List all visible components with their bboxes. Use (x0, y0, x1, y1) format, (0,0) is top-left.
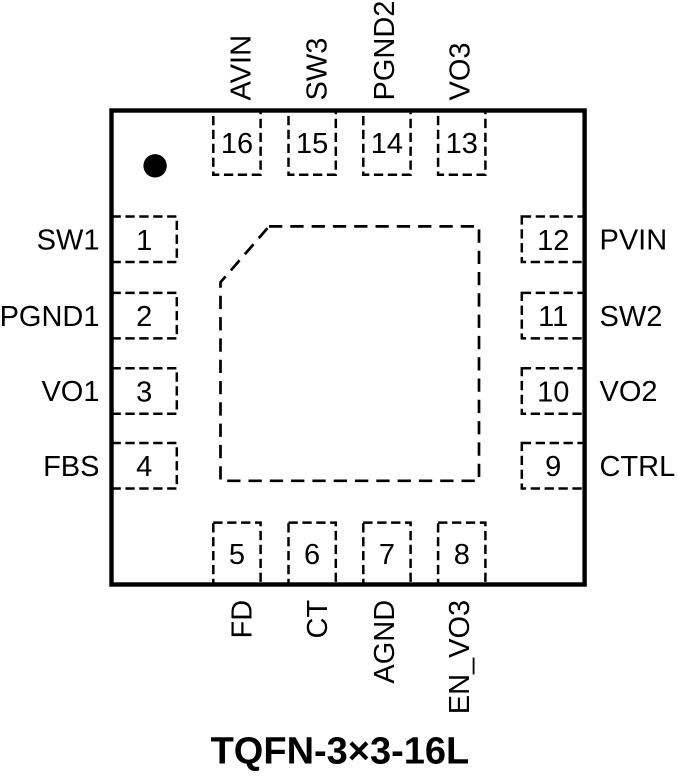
svg-text:VO3: VO3 (445, 42, 477, 100)
svg-text:14: 14 (371, 128, 403, 160)
svg-text:5: 5 (229, 539, 245, 571)
svg-text:TQFN-3×3-16L: TQFN-3×3-16L (211, 731, 470, 773)
svg-text:PVIN: PVIN (600, 224, 668, 256)
svg-text:2: 2 (136, 301, 152, 333)
svg-text:CT: CT (302, 600, 334, 639)
svg-text:FD: FD (227, 600, 259, 639)
svg-text:SW2: SW2 (600, 301, 663, 333)
svg-text:8: 8 (454, 539, 470, 571)
svg-text:SW1: SW1 (37, 224, 100, 256)
svg-text:SW3: SW3 (302, 38, 334, 101)
svg-text:PGND2: PGND2 (369, 1, 401, 101)
svg-text:AGND: AGND (369, 600, 401, 684)
svg-text:AVIN: AVIN (225, 35, 257, 101)
svg-text:4: 4 (136, 451, 152, 483)
svg-text:16: 16 (221, 128, 253, 160)
svg-text:PGND1: PGND1 (0, 301, 100, 333)
svg-text:EN_VO3: EN_VO3 (444, 600, 476, 714)
svg-text:6: 6 (304, 539, 320, 571)
svg-text:1: 1 (136, 225, 152, 257)
svg-text:VO2: VO2 (600, 376, 658, 408)
svg-text:12: 12 (537, 225, 569, 257)
svg-text:11: 11 (538, 301, 568, 333)
svg-text:FBS: FBS (43, 451, 99, 483)
svg-text:3: 3 (136, 376, 152, 408)
svg-text:15: 15 (296, 128, 328, 160)
svg-text:9: 9 (545, 451, 561, 483)
svg-text:CTRL: CTRL (600, 451, 676, 483)
svg-text:10: 10 (537, 376, 569, 408)
svg-text:7: 7 (379, 539, 395, 571)
svg-text:VO1: VO1 (41, 376, 99, 408)
svg-text:13: 13 (446, 128, 478, 160)
